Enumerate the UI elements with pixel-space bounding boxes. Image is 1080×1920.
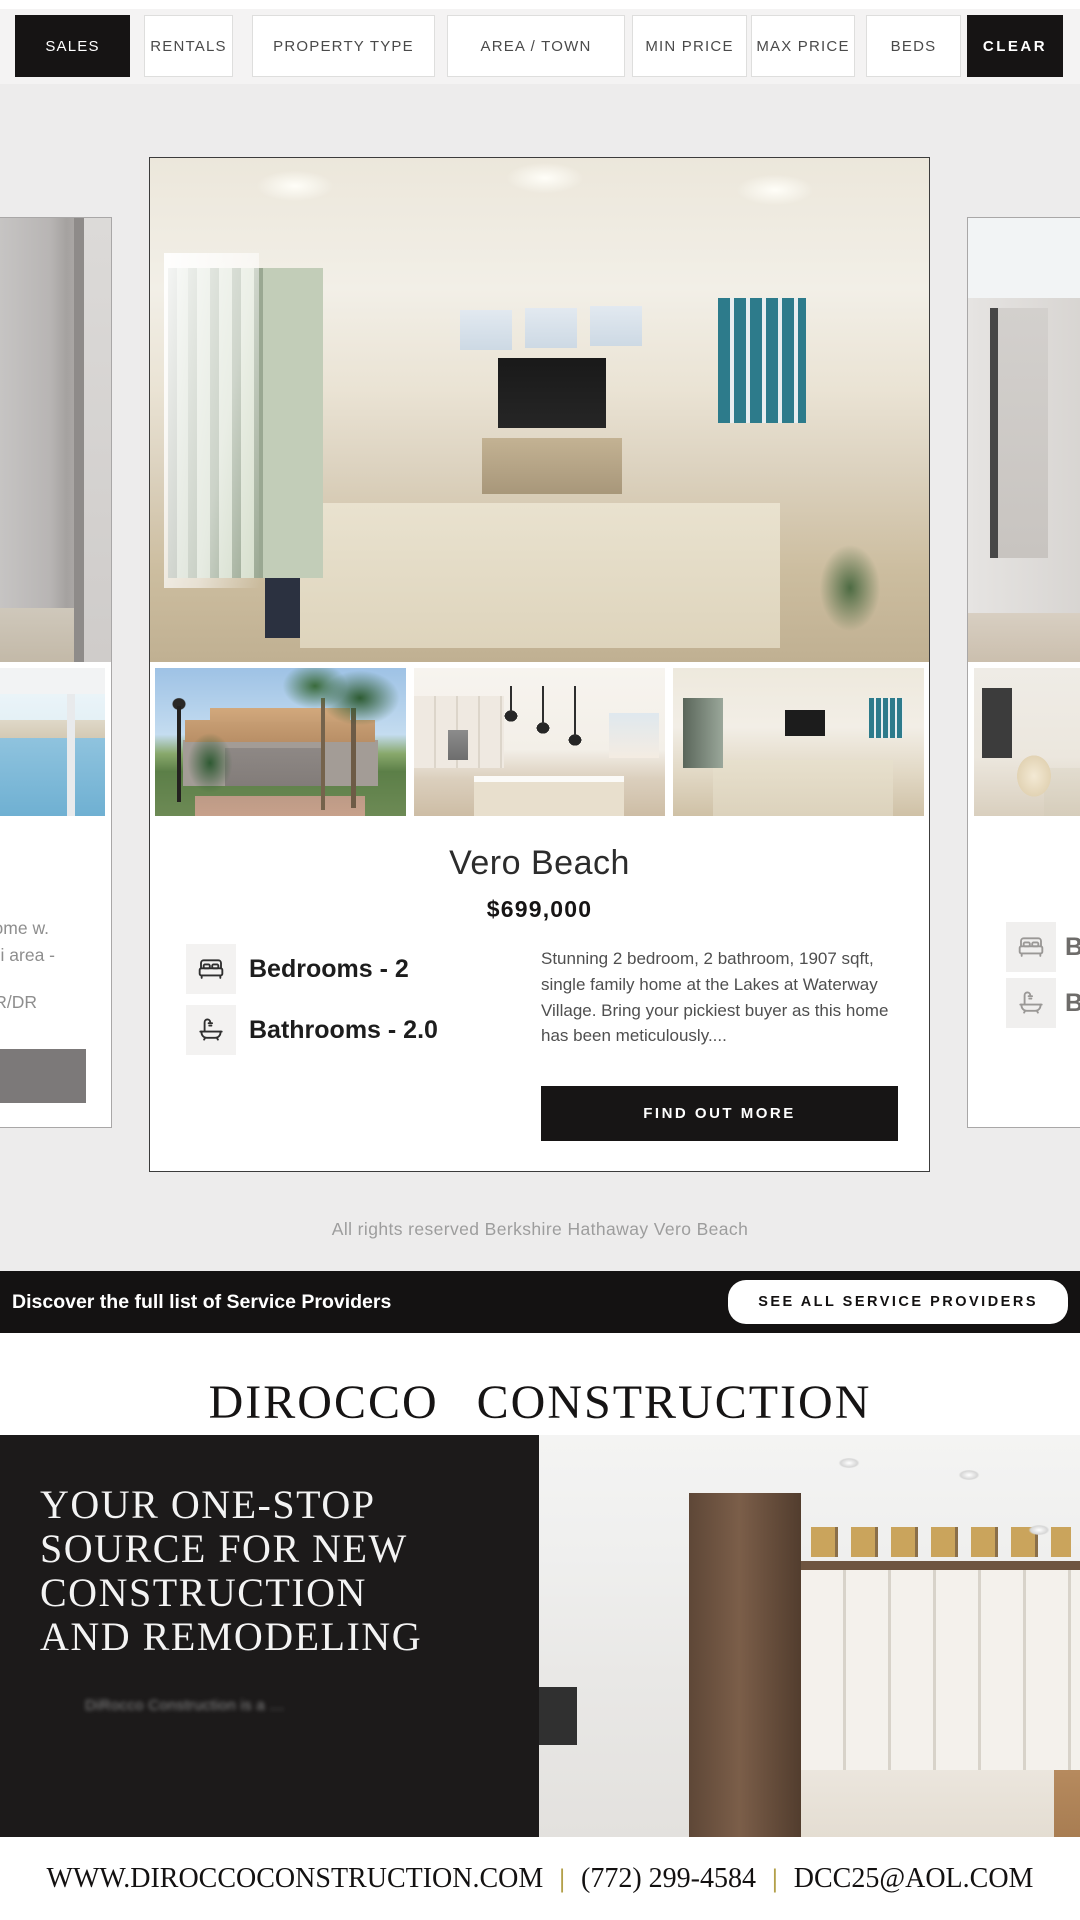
footer-separator: | bbox=[772, 1864, 778, 1894]
main-photo-living-room[interactable] bbox=[150, 158, 929, 662]
copyright-text: All rights reserved Berkshire Hathaway V… bbox=[0, 1219, 1080, 1240]
sponsor-section: DIROCCO CONSTRUCTION YOUR ONE-STOP SOURC… bbox=[0, 1333, 1080, 1920]
previous-listing-description-fragment: R/DR bbox=[0, 992, 37, 1013]
filter-clear-button[interactable]: CLEAR bbox=[967, 15, 1063, 77]
next-bathrooms-feature: Ba bbox=[1006, 978, 1080, 1028]
filter-beds-dropdown[interactable]: BEDS bbox=[866, 15, 961, 77]
listing-carousel: ome w. i area - R/DR Vero Beach $699,000 bbox=[0, 84, 1080, 1271]
bedrooms-label: Bedrooms - 2 bbox=[249, 955, 409, 984]
filter-bar: SALES RENTALS PROPERTY TYPE AREA / TOWN … bbox=[0, 0, 1080, 84]
next-bedrooms-feature: Be bbox=[1006, 922, 1080, 972]
bathrooms-label: Bathrooms - 2.0 bbox=[249, 1016, 438, 1045]
listing-card: Vero Beach $699,000 Bedrooms - 2 bbox=[149, 157, 930, 1172]
filter-min-price-dropdown[interactable]: MIN PRICE bbox=[632, 15, 747, 77]
sponsor-headline-line: AND REMODELING bbox=[40, 1615, 422, 1659]
bath-icon bbox=[1006, 978, 1056, 1028]
thumbnail-row bbox=[150, 668, 929, 816]
sponsor-hero: YOUR ONE-STOP SOURCE FOR NEW CONSTRUCTIO… bbox=[0, 1435, 1080, 1837]
sponsor-hero-text-panel: YOUR ONE-STOP SOURCE FOR NEW CONSTRUCTIO… bbox=[0, 1435, 539, 1837]
listing-price: $699,000 bbox=[150, 896, 929, 923]
listing-features: Bedrooms - 2 Bathrooms - 2.0 bbox=[186, 944, 438, 1066]
listing-city: Vero Beach bbox=[150, 844, 929, 883]
sponsor-subtext: DiRocco Construction is a … bbox=[85, 1697, 285, 1714]
filter-area-town-dropdown[interactable]: AREA / TOWN bbox=[447, 15, 625, 77]
sponsor-headline-line: SOURCE FOR NEW bbox=[40, 1527, 422, 1571]
service-bar-text: Discover the full list of Service Provid… bbox=[12, 1291, 391, 1314]
sponsor-website-link[interactable]: WWW.DIROCCOCONSTRUCTION.COM bbox=[47, 1863, 544, 1895]
listing-description: Stunning 2 bedroom, 2 bathroom, 1907 sqf… bbox=[541, 946, 901, 1049]
filter-rentals-button[interactable]: RENTALS bbox=[144, 15, 233, 77]
previous-listing-description-fragment: i area - bbox=[1, 945, 55, 966]
footer-separator: | bbox=[559, 1864, 565, 1894]
thumbnail-house-exterior[interactable] bbox=[155, 668, 406, 816]
bed-icon bbox=[186, 944, 236, 994]
sponsor-phone-link[interactable]: (772) 299-4584 bbox=[581, 1863, 756, 1895]
previous-listing-photo[interactable] bbox=[0, 218, 111, 662]
previous-listing-description-fragment: ome w. bbox=[0, 918, 49, 939]
bathrooms-feature: Bathrooms - 2.0 bbox=[186, 1005, 438, 1055]
previous-listing-cta-button[interactable] bbox=[0, 1049, 86, 1103]
previous-listing-card[interactable]: ome w. i area - R/DR bbox=[0, 217, 112, 1128]
filter-max-price-dropdown[interactable]: MAX PRICE bbox=[751, 15, 855, 77]
sponsor-footer: WWW.DIROCCOCONSTRUCTION.COM | (772) 299-… bbox=[0, 1837, 1080, 1920]
sponsor-headline-line: YOUR ONE-STOP bbox=[40, 1483, 422, 1527]
thumbnail-kitchen[interactable] bbox=[414, 668, 665, 816]
next-bathrooms-label: Ba bbox=[1065, 989, 1080, 1018]
sponsor-headline-line: CONSTRUCTION bbox=[40, 1571, 422, 1615]
next-bedrooms-label: Be bbox=[1065, 933, 1080, 962]
sponsor-name: DIROCCO CONSTRUCTION bbox=[0, 1375, 1080, 1430]
bed-icon bbox=[1006, 922, 1056, 972]
bedrooms-feature: Bedrooms - 2 bbox=[186, 944, 438, 994]
next-listing-card[interactable]: Be Ba bbox=[967, 217, 1080, 1128]
next-listing-photo[interactable] bbox=[968, 218, 1080, 662]
filter-sales-button[interactable]: SALES bbox=[15, 15, 130, 77]
next-listing-thumbnail[interactable] bbox=[974, 668, 1080, 816]
previous-listing-thumbnail-pool[interactable] bbox=[0, 668, 105, 816]
filter-property-type-dropdown[interactable]: PROPERTY TYPE bbox=[252, 15, 435, 77]
bath-icon bbox=[186, 1005, 236, 1055]
find-out-more-button[interactable]: FIND OUT MORE bbox=[541, 1086, 898, 1141]
service-providers-bar: Discover the full list of Service Provid… bbox=[0, 1271, 1080, 1333]
thumbnail-living-room[interactable] bbox=[673, 668, 924, 816]
sponsor-email-link[interactable]: DCC25@AOL.COM bbox=[794, 1863, 1034, 1895]
sponsor-kitchen-photo bbox=[539, 1435, 1080, 1837]
see-all-service-providers-button[interactable]: SEE ALL SERVICE PROVIDERS bbox=[728, 1280, 1068, 1324]
sponsor-headline: YOUR ONE-STOP SOURCE FOR NEW CONSTRUCTIO… bbox=[40, 1483, 422, 1659]
